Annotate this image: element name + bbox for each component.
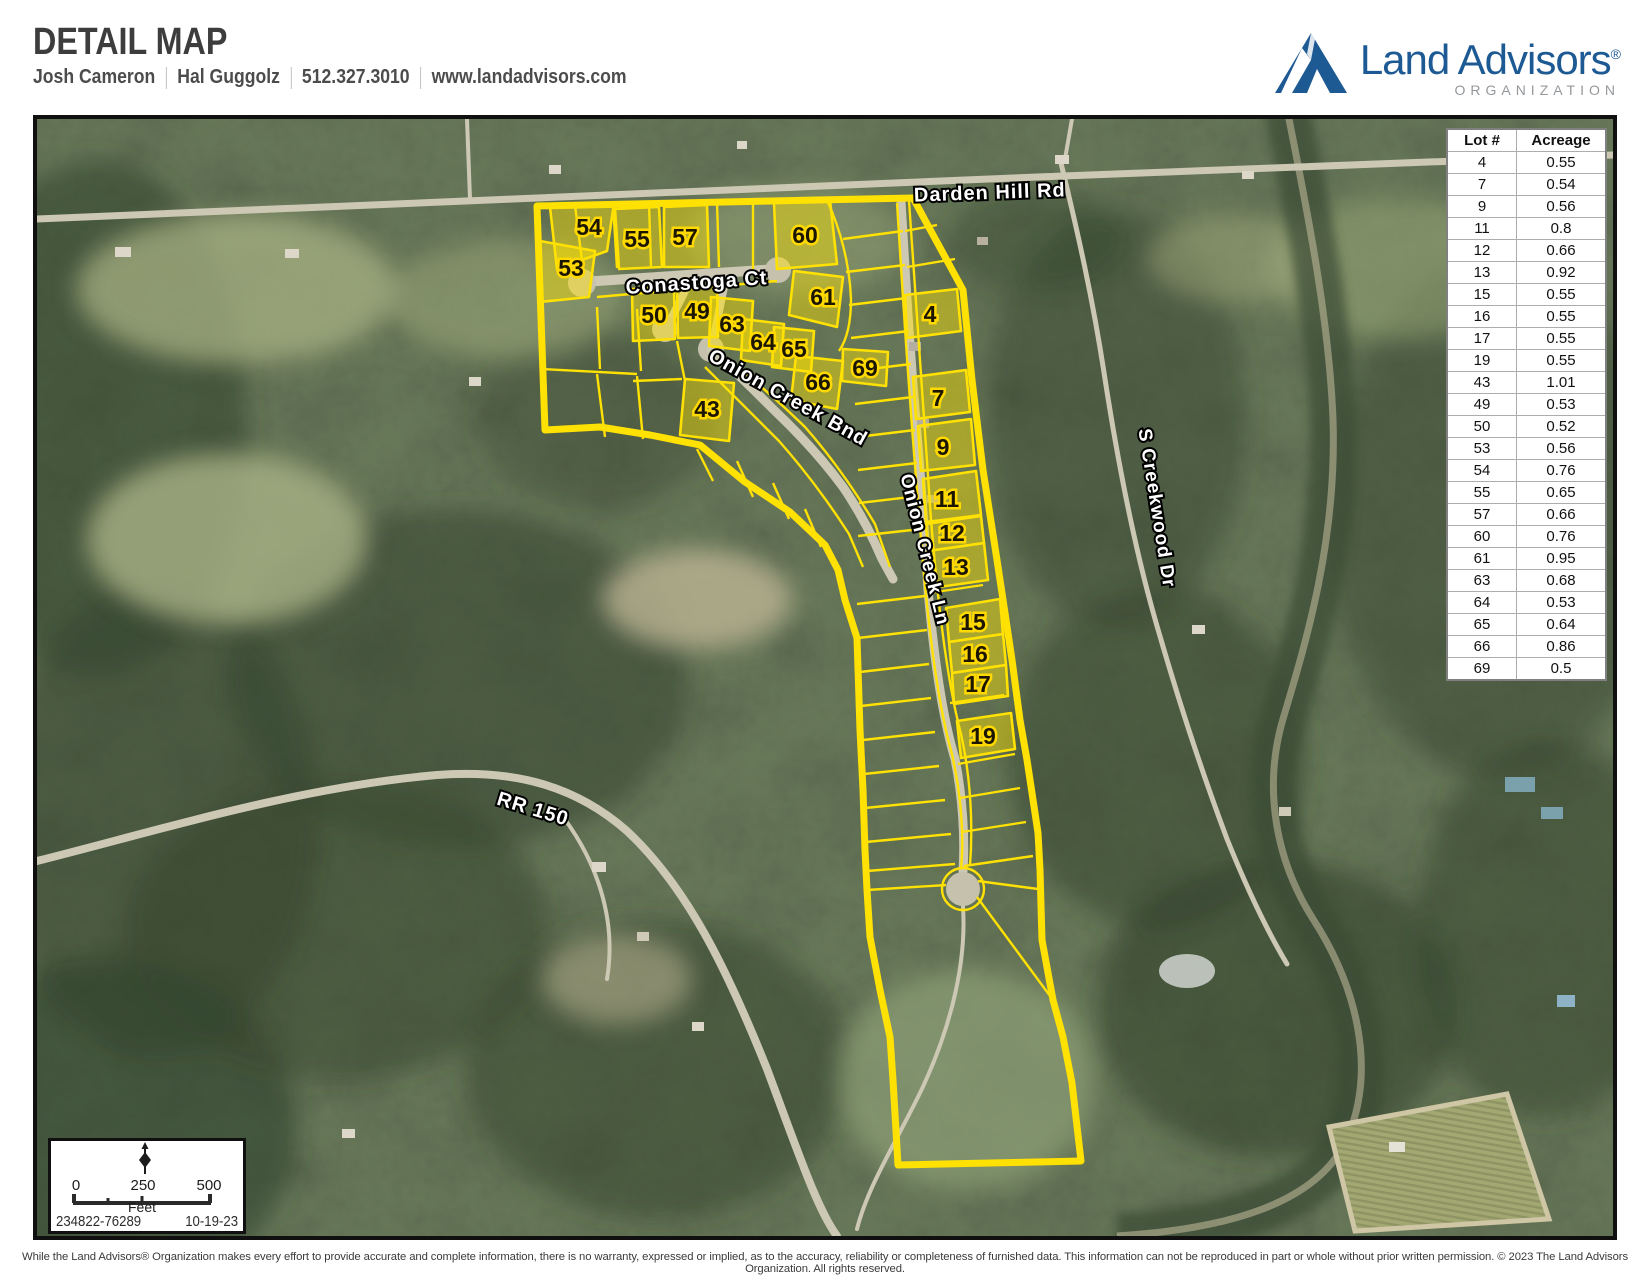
lot-label-13: 13 bbox=[943, 554, 969, 580]
lot-cell: 7 bbox=[1447, 174, 1517, 196]
acreage-cell: 0.56 bbox=[1517, 196, 1607, 218]
acreage-cell: 0.55 bbox=[1517, 152, 1607, 174]
scale-unit: Feet bbox=[128, 1199, 156, 1213]
lot-cell: 54 bbox=[1447, 460, 1517, 482]
map-number: 234822-76289 bbox=[56, 1213, 141, 1230]
lot-cell: 17 bbox=[1447, 328, 1517, 350]
lot-label-65: 65 bbox=[781, 336, 807, 362]
acreage-cell: 0.65 bbox=[1517, 482, 1607, 504]
acreage-cell: 0.55 bbox=[1517, 306, 1607, 328]
lot-label-57: 57 bbox=[672, 224, 698, 250]
lot-cell: 19 bbox=[1447, 350, 1517, 372]
lot-cell: 11 bbox=[1447, 218, 1517, 240]
brand-name: Land Advisors® bbox=[1360, 32, 1620, 82]
acreage-cell: 0.53 bbox=[1517, 394, 1607, 416]
lot-cell: 57 bbox=[1447, 504, 1517, 526]
contact-line: Josh Cameron Hal Guggolz 512.327.3010 ww… bbox=[33, 66, 627, 89]
table-row: 500.52 bbox=[1447, 416, 1606, 438]
lot-label-43: 43 bbox=[694, 396, 720, 422]
registered-mark: ® bbox=[1611, 46, 1620, 62]
disclaimer: While the Land Advisors® Organization ma… bbox=[0, 1251, 1650, 1275]
lot-cell: 43 bbox=[1447, 372, 1517, 394]
table-row: 570.66 bbox=[1447, 504, 1606, 526]
lot-cell: 9 bbox=[1447, 196, 1517, 218]
acreage-cell: 0.86 bbox=[1517, 636, 1607, 658]
website-url: www.landadvisors.com bbox=[432, 66, 627, 89]
scale-ticks: 0 250 500 bbox=[72, 1177, 222, 1194]
organization-label: ORGANIZATION bbox=[1360, 82, 1620, 98]
acreage-cell: 0.66 bbox=[1517, 240, 1607, 262]
table-row: 600.76 bbox=[1447, 526, 1606, 548]
acreage-column-header: Acreage bbox=[1517, 129, 1607, 152]
lot-label-66: 66 bbox=[805, 369, 831, 395]
land-advisors-logo: Land Advisors® ORGANIZATION bbox=[1274, 32, 1620, 98]
svg-text:0: 0 bbox=[72, 1177, 80, 1194]
logo-text: Land Advisors® ORGANIZATION bbox=[1360, 32, 1620, 98]
table-row: 170.55 bbox=[1447, 328, 1606, 350]
detail-map-page: DETAIL MAP Josh Cameron Hal Guggolz 512.… bbox=[0, 0, 1650, 1284]
table-header-row: Lot # Acreage bbox=[1447, 129, 1606, 152]
lot-cell: 53 bbox=[1447, 438, 1517, 460]
acreage-cell: 0.64 bbox=[1517, 614, 1607, 636]
lot-label-63: 63 bbox=[719, 311, 745, 337]
table-row: 490.53 bbox=[1447, 394, 1606, 416]
aerial-map: 54 53 55 57 60 61 50 49 63 64 65 69 66 4… bbox=[33, 115, 1617, 1240]
acreage-cell: 0.55 bbox=[1517, 350, 1607, 372]
lot-label-9: 9 bbox=[937, 434, 950, 460]
acreage-cell: 0.92 bbox=[1517, 262, 1607, 284]
lot-cell: 64 bbox=[1447, 592, 1517, 614]
table-row: 70.54 bbox=[1447, 174, 1606, 196]
table-row: 650.64 bbox=[1447, 614, 1606, 636]
north-arrow-icon bbox=[139, 1142, 151, 1174]
page-title: DETAIL MAP bbox=[33, 22, 606, 62]
table-row: 40.55 bbox=[1447, 152, 1606, 174]
lot-cell: 13 bbox=[1447, 262, 1517, 284]
table-row: 630.68 bbox=[1447, 570, 1606, 592]
acreage-cell: 0.5 bbox=[1517, 658, 1607, 681]
acreage-cell: 0.68 bbox=[1517, 570, 1607, 592]
lot-cell: 49 bbox=[1447, 394, 1517, 416]
table-row: 610.95 bbox=[1447, 548, 1606, 570]
divider bbox=[290, 67, 291, 89]
table-row: 640.53 bbox=[1447, 592, 1606, 614]
lot-cell: 55 bbox=[1447, 482, 1517, 504]
lot-label-11: 11 bbox=[935, 486, 960, 512]
divider bbox=[166, 67, 167, 89]
lot-cell: 50 bbox=[1447, 416, 1517, 438]
acreage-cell: 0.53 bbox=[1517, 592, 1607, 614]
pond bbox=[1159, 954, 1215, 988]
acreage-cell: 0.95 bbox=[1517, 548, 1607, 570]
table-row: 130.92 bbox=[1447, 262, 1606, 284]
lot-cell: 16 bbox=[1447, 306, 1517, 328]
table-row: 540.76 bbox=[1447, 460, 1606, 482]
lot-label-60: 60 bbox=[792, 222, 818, 248]
acreage-cell: 0.8 bbox=[1517, 218, 1607, 240]
lot-column-header: Lot # bbox=[1447, 129, 1517, 152]
acreage-cell: 0.66 bbox=[1517, 504, 1607, 526]
phone-number: 512.327.3010 bbox=[302, 66, 410, 89]
table-row: 530.56 bbox=[1447, 438, 1606, 460]
table-row: 120.66 bbox=[1447, 240, 1606, 262]
lot-cell: 15 bbox=[1447, 284, 1517, 306]
lot-cell: 65 bbox=[1447, 614, 1517, 636]
acreage-cell: 1.01 bbox=[1517, 372, 1607, 394]
lot-cell: 66 bbox=[1447, 636, 1517, 658]
acreage-cell: 0.76 bbox=[1517, 526, 1607, 548]
svg-text:250: 250 bbox=[130, 1177, 155, 1194]
table-row: 431.01 bbox=[1447, 372, 1606, 394]
lot-cell: 4 bbox=[1447, 152, 1517, 174]
acreage-cell: 0.55 bbox=[1517, 328, 1607, 350]
lot-label-69: 69 bbox=[852, 355, 878, 381]
lot-label-4: 4 bbox=[924, 301, 937, 327]
acreage-cell: 0.76 bbox=[1517, 460, 1607, 482]
table-row: 150.55 bbox=[1447, 284, 1606, 306]
lot-cell: 63 bbox=[1447, 570, 1517, 592]
agent-name-2: Hal Guggolz bbox=[177, 66, 280, 89]
lot-label-7: 7 bbox=[932, 385, 945, 411]
lot-label-17: 17 bbox=[965, 671, 991, 697]
table-row: 690.5 bbox=[1447, 658, 1606, 681]
lot-label-53: 53 bbox=[558, 255, 584, 281]
table-row: 660.86 bbox=[1447, 636, 1606, 658]
lot-label-64: 64 bbox=[750, 329, 776, 355]
acreage-cell: 0.56 bbox=[1517, 438, 1607, 460]
lot-cell: 61 bbox=[1447, 548, 1517, 570]
lot-cell: 60 bbox=[1447, 526, 1517, 548]
table-row: 550.65 bbox=[1447, 482, 1606, 504]
lot-label-61: 61 bbox=[810, 284, 836, 310]
acreage-cell: 0.55 bbox=[1517, 284, 1607, 306]
lot-label-50: 50 bbox=[641, 302, 667, 328]
lot-label-55: 55 bbox=[624, 226, 650, 252]
header: DETAIL MAP Josh Cameron Hal Guggolz 512.… bbox=[33, 22, 708, 89]
logo-triangle-icon bbox=[1274, 32, 1348, 94]
table-row: 190.55 bbox=[1447, 350, 1606, 372]
map-date: 10-19-23 bbox=[185, 1213, 238, 1230]
lot-label-54: 54 bbox=[576, 214, 602, 240]
table-row: 110.8 bbox=[1447, 218, 1606, 240]
lot-cell: 69 bbox=[1447, 658, 1517, 681]
lot-label-16: 16 bbox=[962, 641, 988, 667]
acreage-cell: 0.54 bbox=[1517, 174, 1607, 196]
lot-label-19: 19 bbox=[970, 723, 996, 749]
lot-label-15: 15 bbox=[960, 609, 986, 635]
scale-graphics: 0 250 500 Feet bbox=[51, 1141, 241, 1213]
agent-name-1: Josh Cameron bbox=[33, 66, 155, 89]
divider bbox=[420, 67, 421, 89]
scale-box: 0 250 500 Feet 234822-76289 10-19-23 bbox=[48, 1138, 246, 1234]
acreage-cell: 0.52 bbox=[1517, 416, 1607, 438]
table-row: 160.55 bbox=[1447, 306, 1606, 328]
lot-label-12: 12 bbox=[939, 520, 965, 546]
lot-acreage-table: Lot # Acreage 40.55 70.54 90.56 110.8 12… bbox=[1446, 128, 1607, 681]
lot-cell: 12 bbox=[1447, 240, 1517, 262]
svg-text:500: 500 bbox=[196, 1177, 221, 1194]
aerial-basemap: 54 53 55 57 60 61 50 49 63 64 65 69 66 4… bbox=[37, 119, 1613, 1236]
table-row: 90.56 bbox=[1447, 196, 1606, 218]
lot-label-49: 49 bbox=[684, 298, 710, 324]
